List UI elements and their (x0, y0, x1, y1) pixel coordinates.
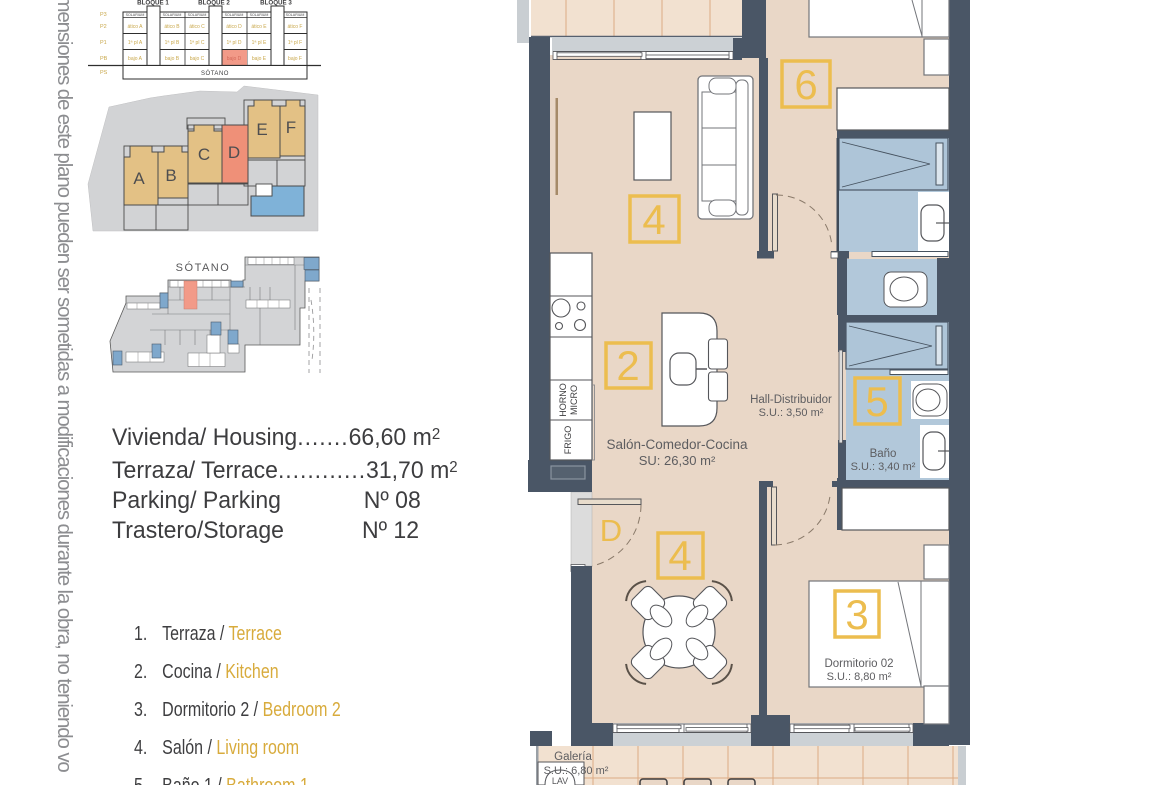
svg-text:1ª pl C: 1ª pl C (190, 40, 205, 46)
svg-text:F: F (286, 118, 296, 137)
svg-text:PS: PS (100, 70, 108, 76)
svg-text:P2: P2 (100, 24, 107, 30)
svg-text:5: 5 (865, 378, 888, 425)
svg-text:SOLARIUM: SOLARIUM (163, 13, 182, 17)
svg-text:6: 6 (794, 61, 817, 108)
svg-text:bajo F: bajo F (288, 56, 302, 62)
svg-text:4: 4 (668, 532, 691, 579)
svg-text:B: B (165, 166, 176, 185)
svg-text:bajo D: bajo D (227, 56, 242, 62)
svg-text:SU: 26,30 m²: SU: 26,30 m² (639, 453, 716, 468)
svg-text:1ª pl E: 1ª pl E (252, 40, 267, 46)
svg-text:ático B: ático B (164, 24, 180, 30)
svg-text:SOLARIUM: SOLARIUM (126, 13, 145, 17)
svg-text:HORNO: HORNO (558, 383, 568, 417)
svg-text:SÓTANO: SÓTANO (201, 70, 229, 77)
svg-text:SOLARIUM: SOLARIUM (286, 13, 305, 17)
svg-text:LAV: LAV (552, 776, 568, 785)
svg-text:SOLARIUM: SOLARIUM (225, 13, 244, 17)
svg-text:C: C (198, 145, 210, 164)
svg-text:bajo B: bajo B (165, 56, 180, 62)
svg-text:Dormitorio 02: Dormitorio 02 (824, 658, 893, 670)
svg-text:ático C: ático C (189, 24, 205, 30)
svg-text:S.U.: 8,80 m²: S.U.: 8,80 m² (827, 671, 892, 683)
svg-text:S.U.: 3,40 m²: S.U.: 3,40 m² (851, 461, 916, 473)
svg-text:SÓTANO: SÓTANO (176, 261, 231, 274)
svg-text:FRIGO: FRIGO (563, 426, 573, 455)
svg-text:bajo A: bajo A (128, 56, 143, 62)
svg-text:P3: P3 (100, 12, 107, 18)
svg-text:ático E: ático E (251, 24, 267, 30)
svg-text:A: A (133, 169, 145, 188)
svg-text:SOLARIUM: SOLARIUM (250, 13, 269, 17)
svg-text:1ª pl A: 1ª pl A (128, 40, 143, 46)
svg-text:D: D (600, 513, 622, 548)
svg-text:2: 2 (616, 342, 639, 389)
svg-text:PB: PB (100, 56, 108, 62)
svg-text:P1: P1 (100, 40, 107, 46)
svg-text:E: E (256, 120, 267, 139)
svg-text:ático A: ático A (127, 24, 143, 30)
svg-text:4: 4 (642, 196, 665, 243)
svg-text:Baño: Baño (870, 448, 897, 460)
svg-text:1ª pl F: 1ª pl F (288, 40, 302, 46)
svg-text:bajo E: bajo E (252, 56, 267, 62)
svg-text:3: 3 (845, 591, 868, 638)
svg-text:ático D: ático D (226, 24, 242, 30)
svg-text:MICRO: MICRO (569, 385, 579, 415)
svg-text:1ª pl D: 1ª pl D (227, 40, 242, 46)
svg-text:Salón-Comedor-Cocina: Salón-Comedor-Cocina (606, 437, 748, 452)
svg-text:D: D (228, 143, 240, 162)
svg-text:SOLARIUM: SOLARIUM (188, 13, 207, 17)
svg-text:ático F: ático F (287, 24, 302, 30)
svg-text:bajo C: bajo C (190, 56, 205, 62)
svg-text:Galería: Galería (554, 751, 592, 763)
svg-text:1ª pl B: 1ª pl B (165, 40, 180, 46)
svg-text:Hall-Distribuidor: Hall-Distribuidor (750, 394, 832, 406)
svg-text:S.U.: 3,50 m²: S.U.: 3,50 m² (759, 407, 824, 419)
